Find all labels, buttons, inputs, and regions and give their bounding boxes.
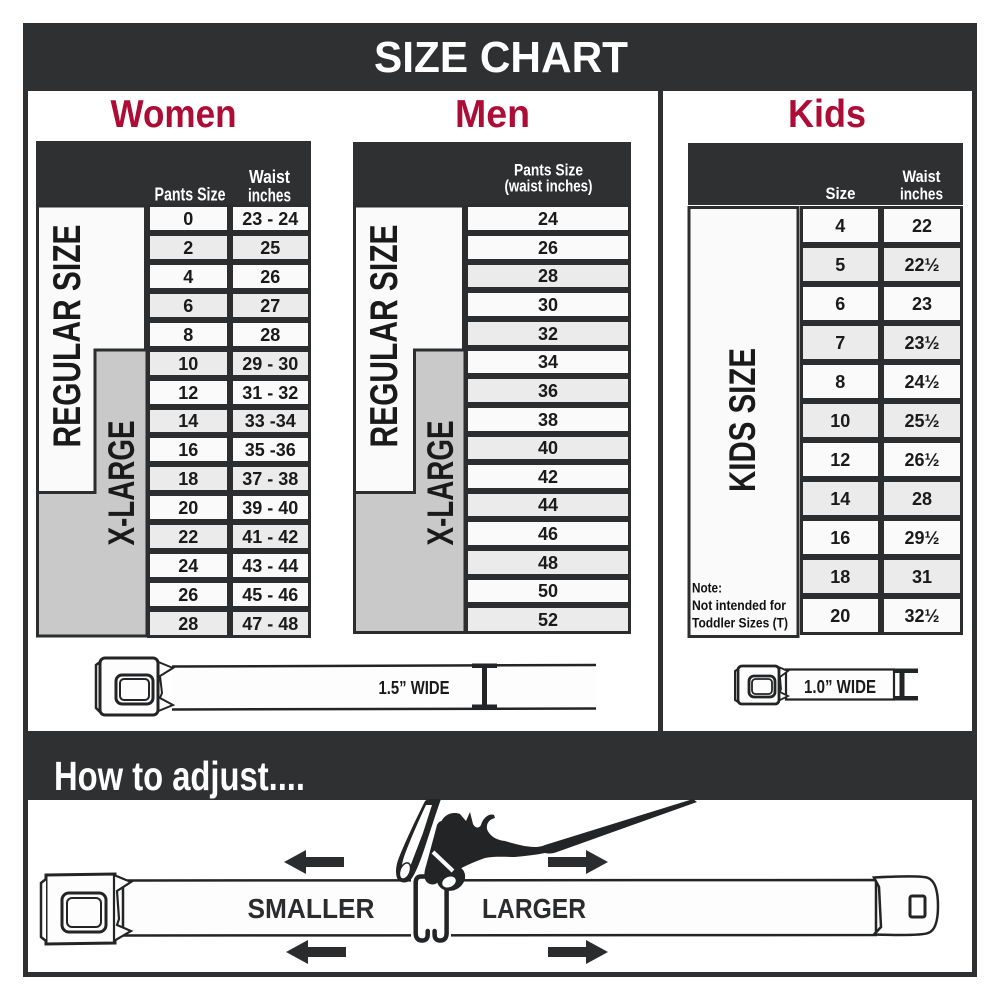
svg-text:(waist inches): (waist inches) — [505, 177, 593, 195]
svg-text:REGULAR SIZE: REGULAR SIZE — [363, 225, 406, 448]
svg-text:inches: inches — [900, 185, 943, 204]
svg-text:inches: inches — [248, 185, 291, 205]
svg-text:Waist: Waist — [903, 167, 941, 186]
svg-text:SIZE CHART: SIZE CHART — [374, 33, 628, 82]
svg-text:1.5” WIDE: 1.5” WIDE — [379, 678, 450, 698]
svg-text:Toddler Sizes (T): Toddler Sizes (T) — [692, 616, 788, 631]
svg-text:Men: Men — [455, 93, 530, 136]
svg-text:1.0” WIDE: 1.0” WIDE — [804, 677, 876, 697]
svg-text:REGULAR SIZE: REGULAR SIZE — [46, 225, 89, 448]
svg-text:Kids: Kids — [788, 93, 866, 136]
svg-text:Pants Size: Pants Size — [155, 185, 226, 205]
svg-text:Waist: Waist — [249, 167, 290, 187]
svg-text:Size: Size — [826, 184, 856, 203]
svg-text:How to adjust....: How to adjust.... — [54, 753, 305, 799]
svg-text:Not intended for: Not intended for — [692, 598, 787, 613]
svg-text:Note:: Note: — [692, 581, 722, 596]
svg-text:KIDS SIZE: KIDS SIZE — [722, 348, 763, 492]
svg-text:SMALLER: SMALLER — [248, 893, 375, 924]
svg-text:LARGER: LARGER — [482, 893, 586, 924]
svg-text:X-LARGE: X-LARGE — [101, 421, 142, 546]
svg-text:Women: Women — [111, 93, 237, 136]
svg-text:X-LARGE: X-LARGE — [420, 421, 461, 546]
